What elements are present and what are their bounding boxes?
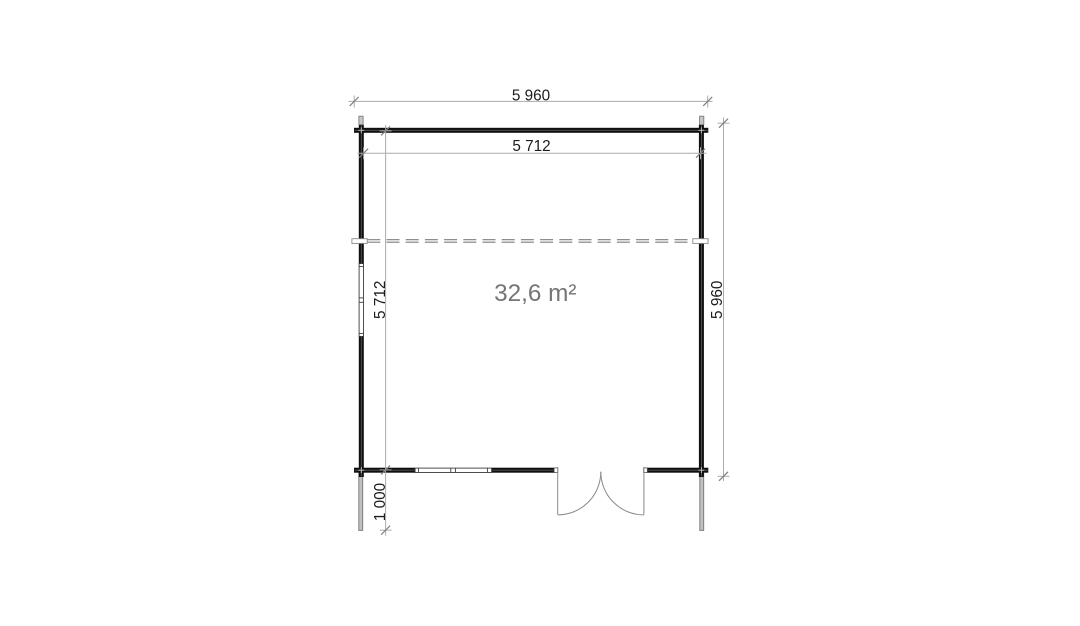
svg-text:5 712: 5 712 <box>372 281 389 319</box>
svg-text:5 960: 5 960 <box>512 88 550 105</box>
svg-text:32,6 m²: 32,6 m² <box>494 280 576 307</box>
svg-text:5 960: 5 960 <box>709 281 726 319</box>
svg-text:5 712: 5 712 <box>512 138 550 155</box>
svg-text:1 000: 1 000 <box>372 483 389 521</box>
